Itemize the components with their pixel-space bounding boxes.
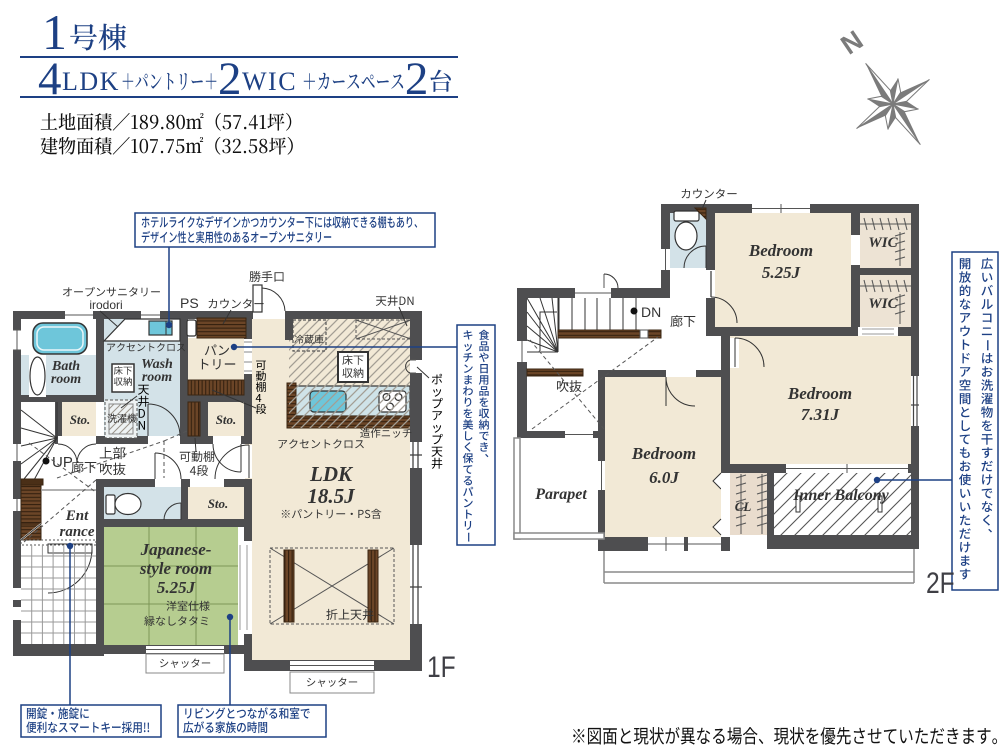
svg-text:WIC: WIC (242, 67, 297, 96)
svg-text:DN: DN (641, 304, 661, 320)
svg-text:6.0J: 6.0J (649, 468, 679, 487)
svg-text:WIC: WIC (868, 235, 898, 251)
svg-text:LDK: LDK (309, 462, 354, 486)
svg-text:PS: PS (180, 295, 199, 311)
svg-text:CL: CL (735, 499, 752, 514)
svg-text:7.31J: 7.31J (801, 405, 840, 424)
svg-text:2F: 2F (926, 566, 955, 600)
svg-text:5.25J: 5.25J (157, 578, 196, 597)
svg-text:18.5J: 18.5J (307, 484, 356, 508)
svg-text:Bedroom: Bedroom (787, 384, 852, 403)
svg-text:room: room (51, 372, 81, 387)
svg-text:Bedroom: Bedroom (631, 444, 696, 463)
svg-text:1: 1 (42, 4, 67, 60)
svg-text:UP: UP (52, 454, 73, 471)
svg-text:room: room (142, 370, 172, 385)
svg-text:1F: 1F (427, 650, 456, 684)
svg-text:Bedroom: Bedroom (748, 241, 813, 260)
svg-text:Sto.: Sto. (70, 412, 91, 427)
svg-text:5.25J: 5.25J (762, 263, 801, 282)
svg-text:style room: style room (139, 559, 212, 578)
svg-text:rance: rance (60, 524, 95, 540)
svg-text:Japanese-: Japanese- (140, 540, 212, 559)
svg-text:Ent: Ent (65, 508, 89, 524)
svg-text:irodori: irodori (89, 298, 122, 312)
svg-text:Inner Balcony: Inner Balcony (792, 487, 889, 504)
svg-text:Sto.: Sto. (216, 412, 237, 427)
svg-text:N: N (835, 25, 868, 61)
svg-text:Sto.: Sto. (208, 496, 229, 511)
svg-text:Parapet: Parapet (534, 486, 587, 503)
svg-text:WIC: WIC (868, 296, 898, 312)
svg-text:LDK: LDK (62, 67, 120, 96)
